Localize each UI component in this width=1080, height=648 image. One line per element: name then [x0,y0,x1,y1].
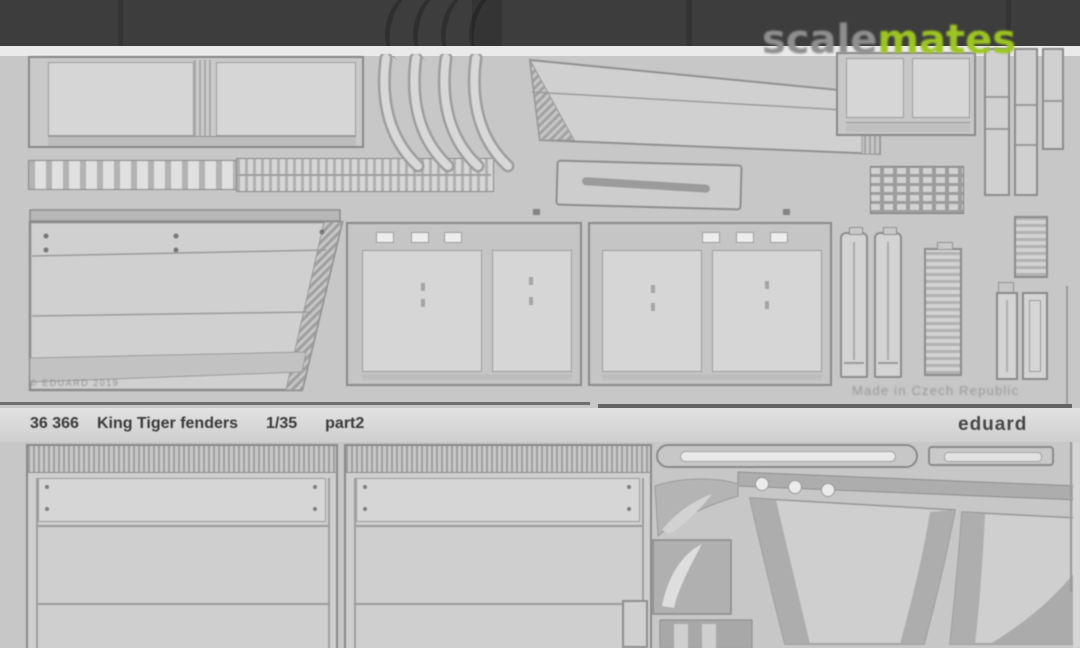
part-hole [702,232,720,243]
product-label-strip: 36 366King Tiger fenders1/35part2 eduard [0,408,1080,442]
part-large-fender-right [344,444,652,648]
part-bottom-rail [362,374,572,380]
part-short-slotted-strip [928,446,1054,466]
part-slotted-bracket [555,160,742,211]
part-tread-bar [346,446,650,473]
part-panel [846,58,904,118]
part-hole [376,232,394,243]
part-slot [582,177,710,193]
part-panel [216,62,356,136]
part-grille [870,166,964,214]
part-trapezoid-fender [24,206,348,396]
part-strip [874,232,902,378]
product-name: King Tiger fenders [97,415,238,432]
part-tread-bar [28,446,336,473]
part-slot [944,452,1042,462]
part-fender-assembly [28,56,364,148]
part-panel [492,250,572,372]
part-comb-strip [28,160,238,190]
product-part: part2 [325,415,364,432]
watermark-scale: scale [762,17,877,63]
part-bottom-rail [846,122,970,132]
part-hole [444,232,462,243]
part-fender-frame-1 [346,222,582,386]
part-cropped-strip [622,600,648,648]
part-slanted-skirt [524,54,888,166]
product-scale: 1/35 [266,415,297,432]
part-panel [912,58,970,118]
part-panel [362,250,482,372]
scalemates-watermark: scalemates [762,18,1016,62]
product-code: 36 366 [30,415,79,432]
part-large-fender-left [26,444,338,648]
part-slot [680,451,896,462]
part-tab [937,242,953,250]
part-hatched-column [924,248,962,376]
brand-logo-text: eduard [958,414,1027,436]
part-strip [840,232,868,378]
part-tab [849,227,863,235]
part-edge-strip [1042,48,1064,150]
part-mudflap-group [650,468,1080,648]
part-long-slotted-strip [656,444,918,468]
part-panel [1029,300,1041,372]
watermark-mates: mates [877,17,1016,63]
part-tab [883,227,897,235]
part-small-frame [1022,292,1048,380]
photo-edge-margin [1073,442,1080,648]
shadow-line [118,0,123,46]
photo-edge [1066,286,1068,406]
etch-sheet-top: © EDUARD 2019 Made in Czech Republic [0,56,1080,408]
part-hole [736,232,754,243]
part-edge-strip [1014,48,1038,196]
part-bottom-rail [48,136,356,146]
photo-edge [1070,442,1072,592]
etched-made-in: Made in Czech Republic [852,383,1019,398]
part-panel [48,62,194,136]
etched-number-mark [783,209,790,215]
part-hole [411,232,429,243]
shadow-line [686,0,692,46]
part-edge-strip [984,48,1010,196]
etched-copyright: © EDUARD 2019 [30,378,119,388]
part-hole [770,232,788,243]
part-top-right-frame [836,52,976,136]
part-curved-strips [372,54,530,180]
part-panel [712,250,822,372]
product-photo: scalemates [0,0,1080,648]
product-title: 36 366King Tiger fenders1/35part2 [30,415,382,433]
etch-sheet-bottom [0,442,1080,648]
part-sub-panel [38,478,326,522]
part-sub-panel [356,478,640,522]
part-bottom-rail [602,374,822,380]
etched-number-mark [533,209,540,215]
part-small-hatched [1014,216,1048,278]
sheet-bottom-edge [0,402,590,405]
part-small-frame [996,292,1018,380]
part-panel [602,250,702,372]
part-fender-frame-2 [588,222,832,386]
part-hinge-hatch [194,60,214,140]
